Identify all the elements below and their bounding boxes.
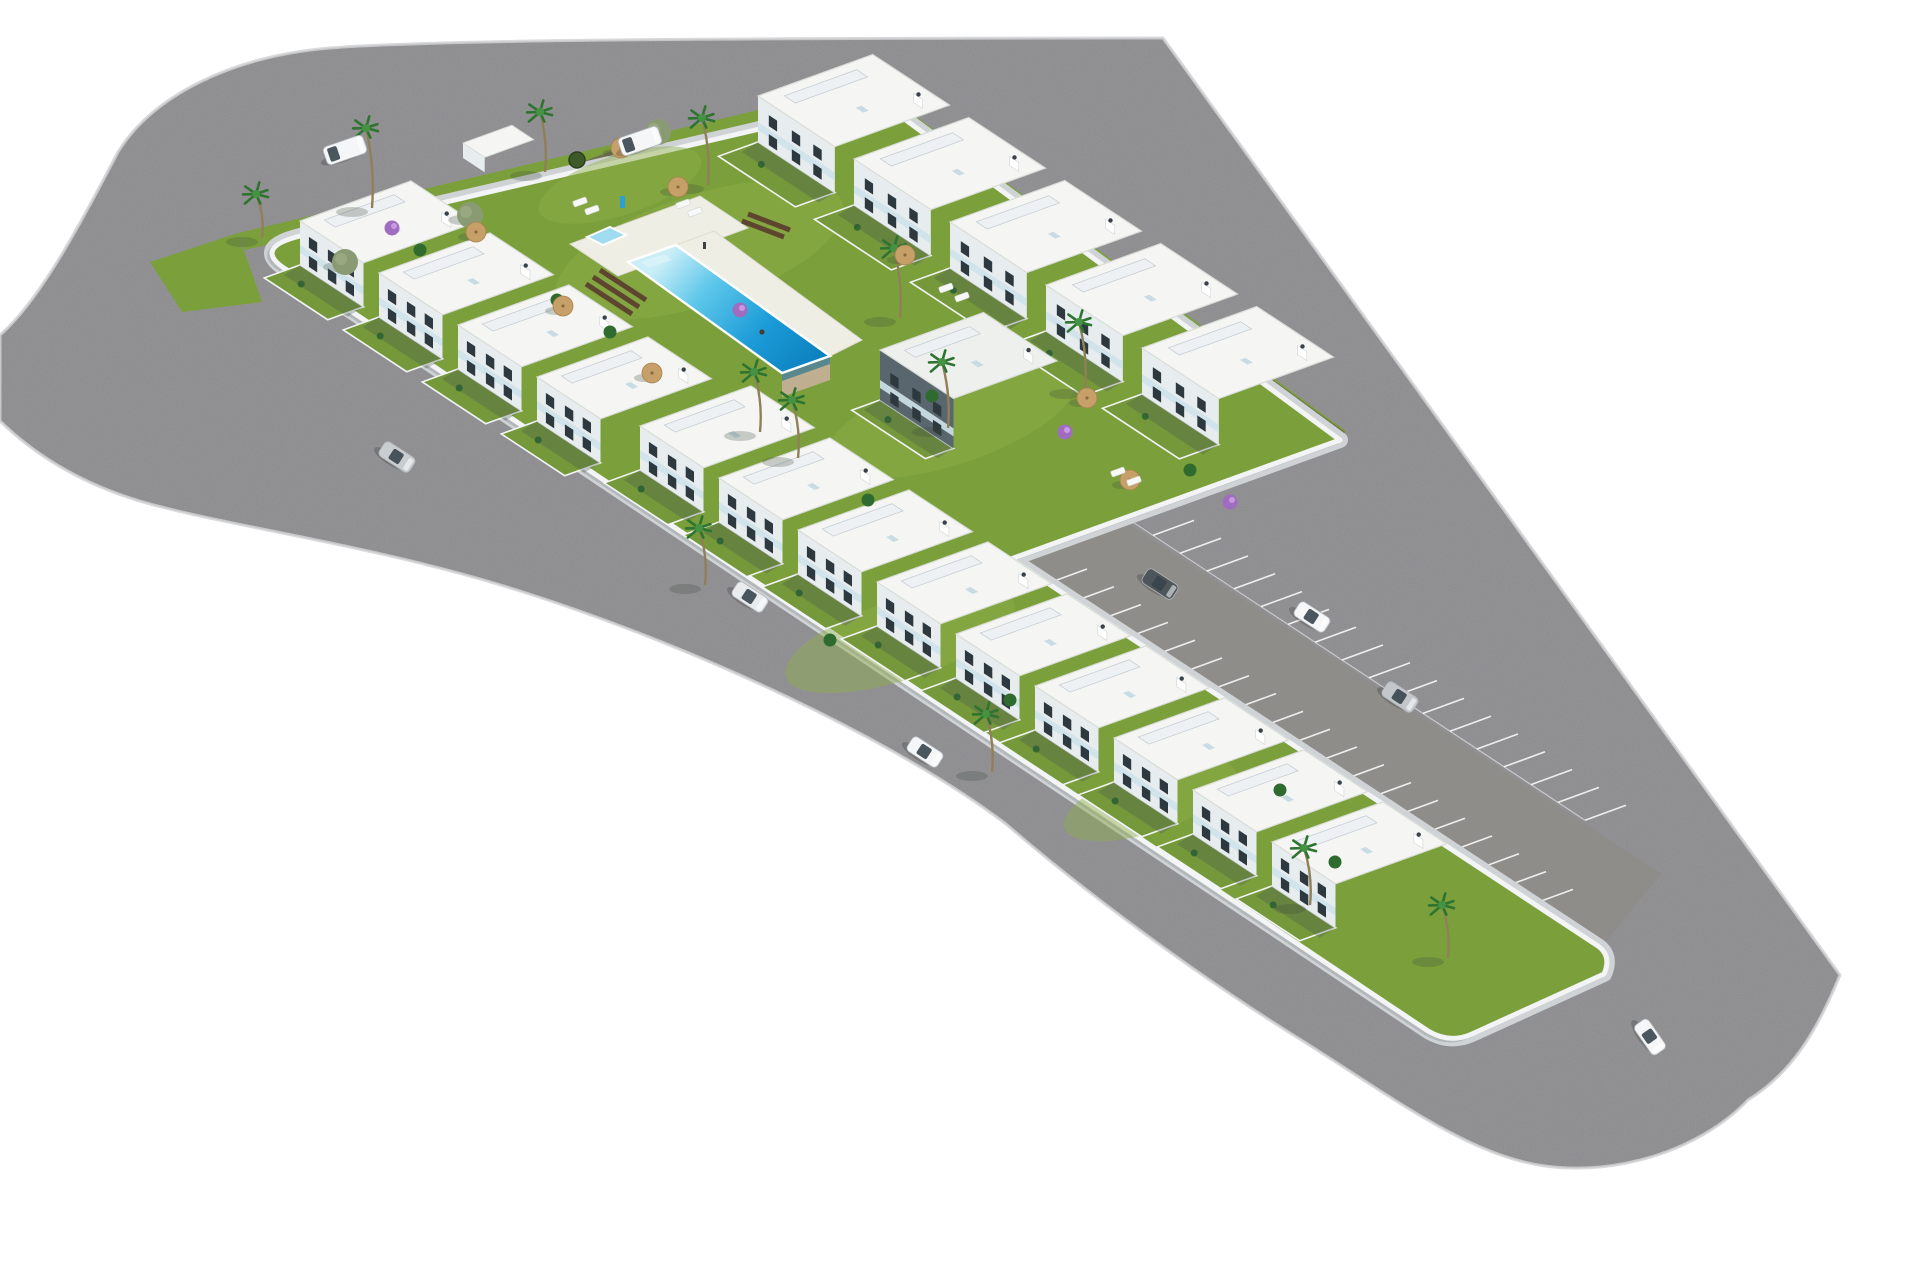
tree-shadow: [336, 207, 368, 217]
bush: [1329, 856, 1342, 869]
tree-shadow: [226, 237, 258, 247]
swimmer: [759, 329, 764, 334]
chimney-cap: [1026, 348, 1030, 352]
site-plan-render: [0, 0, 1920, 1280]
tree-shadow: [762, 457, 794, 467]
chimney-cap: [445, 211, 449, 215]
chimney-cap: [1300, 344, 1304, 348]
chimney-cap: [1259, 728, 1263, 732]
trampoline: [569, 152, 585, 168]
chimney-cap: [1012, 155, 1016, 159]
tree-shadow: [510, 171, 542, 181]
chimney-cap: [682, 367, 686, 371]
chimney-cap: [1204, 281, 1208, 285]
pool-shower-panel: [620, 196, 625, 208]
chimney-cap: [785, 416, 789, 420]
bush: [414, 244, 427, 257]
chimney-cap: [864, 468, 868, 472]
chimney-cap: [1108, 218, 1112, 222]
bush: [926, 390, 939, 403]
bush: [862, 494, 875, 507]
bush: [1274, 784, 1287, 797]
tree-shadow: [912, 427, 944, 437]
tree-shadow: [1049, 389, 1081, 399]
bush: [824, 634, 837, 647]
bush: [604, 326, 617, 339]
person: [703, 242, 706, 249]
chimney-cap: [524, 263, 528, 267]
render-viewport: [0, 0, 1920, 1280]
tree-shadow: [956, 771, 988, 781]
tree-shadow: [1274, 904, 1306, 914]
chimney-cap: [1180, 676, 1184, 680]
chimney-cap: [1338, 780, 1342, 784]
chimney-cap: [603, 315, 607, 319]
tree-shadow: [1412, 957, 1444, 967]
tree-shadow: [669, 584, 701, 594]
chimney-cap: [916, 92, 920, 96]
chimney-cap: [1101, 624, 1105, 628]
bush: [1004, 694, 1017, 707]
chimney-cap: [1417, 832, 1421, 836]
chimney-cap: [943, 520, 947, 524]
tree-shadow: [864, 317, 896, 327]
tree-shadow: [724, 431, 756, 441]
chimney-cap: [1022, 572, 1026, 576]
bush: [1184, 464, 1197, 477]
